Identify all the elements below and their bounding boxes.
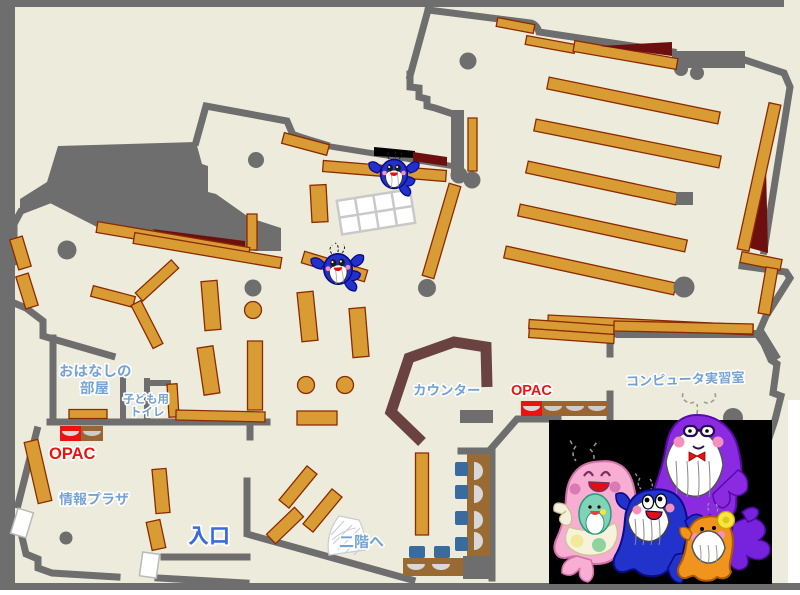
svg-text:OPAC: OPAC: [511, 383, 552, 399]
svg-text:OPAC: OPAC: [49, 445, 96, 463]
